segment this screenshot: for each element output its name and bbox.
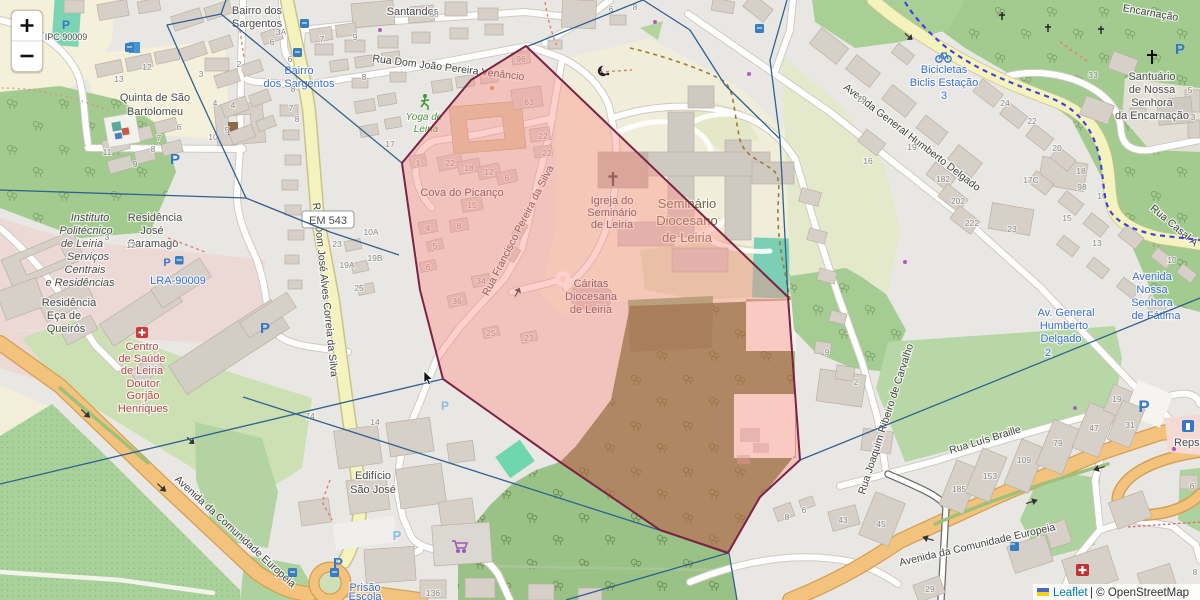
svg-text:3: 3 xyxy=(199,69,204,79)
svg-text:Edifício: Edifício xyxy=(355,470,391,482)
svg-text:Humberto: Humberto xyxy=(1040,320,1088,332)
svg-text:Nossa: Nossa xyxy=(1136,284,1168,296)
svg-text:16: 16 xyxy=(863,156,873,166)
svg-text:98: 98 xyxy=(1077,182,1087,192)
svg-text:Senhora: Senhora xyxy=(1131,97,1173,109)
svg-text:Av. General: Av. General xyxy=(1037,307,1094,319)
svg-text:P: P xyxy=(62,18,70,32)
svg-text:6: 6 xyxy=(1190,481,1195,491)
svg-text:23: 23 xyxy=(332,239,342,249)
svg-text:Henriques: Henriques xyxy=(118,403,169,415)
svg-text:13: 13 xyxy=(114,74,124,84)
svg-text:185: 185 xyxy=(952,484,966,494)
svg-text:P: P xyxy=(1138,397,1149,416)
svg-text:20: 20 xyxy=(1052,143,1062,153)
svg-text:Escola: Escola xyxy=(348,591,382,600)
svg-text:P: P xyxy=(163,257,170,269)
svg-text:Residência: Residência xyxy=(42,297,97,309)
svg-text:P: P xyxy=(393,528,402,543)
svg-text:Delgado: Delgado xyxy=(1041,333,1082,345)
svg-text:25: 25 xyxy=(354,283,364,293)
svg-text:13: 13 xyxy=(1092,238,1102,248)
svg-text:33: 33 xyxy=(1088,70,1098,80)
svg-text:Residência: Residência xyxy=(128,212,183,224)
svg-text:43: 43 xyxy=(838,515,848,525)
svg-text:2: 2 xyxy=(854,377,859,387)
svg-text:19B: 19B xyxy=(367,253,382,263)
svg-text:Bicicletas: Bicicletas xyxy=(921,64,968,76)
svg-text:Gorjão: Gorjão xyxy=(126,390,159,402)
svg-text:8: 8 xyxy=(785,512,790,522)
svg-text:8: 8 xyxy=(295,114,300,124)
svg-text:Eça de: Eça de xyxy=(47,310,81,322)
svg-text:Leaflet: Leaflet xyxy=(1053,587,1088,599)
svg-text:10: 10 xyxy=(1167,255,1177,265)
svg-text:5: 5 xyxy=(225,125,230,135)
svg-text:10A: 10A xyxy=(363,227,378,237)
svg-text:P: P xyxy=(441,399,449,413)
svg-text:136: 136 xyxy=(426,588,440,598)
svg-text:Quinta de São: Quinta de São xyxy=(120,92,190,104)
svg-text:Doutor: Doutor xyxy=(126,378,159,390)
svg-text:4: 4 xyxy=(231,100,236,110)
svg-text:6: 6 xyxy=(177,122,182,132)
svg-text:Bartolomeu: Bartolomeu xyxy=(127,106,183,118)
svg-text:Serviços: Serviços xyxy=(67,251,110,263)
svg-text:P: P xyxy=(1175,41,1185,58)
svg-text:7: 7 xyxy=(320,34,325,44)
svg-text:e Residências: e Residências xyxy=(45,277,115,289)
svg-text:2: 2 xyxy=(237,59,242,69)
svg-text:8: 8 xyxy=(362,72,367,82)
svg-text:17: 17 xyxy=(385,139,395,149)
svg-text:de Leiria: de Leiria xyxy=(61,238,103,250)
svg-text:24: 24 xyxy=(1000,98,1010,108)
svg-text:da Encarnação: da Encarnação xyxy=(1115,110,1189,122)
svg-text:19: 19 xyxy=(907,142,917,152)
svg-text:19: 19 xyxy=(1112,394,1122,404)
svg-text:29: 29 xyxy=(857,94,867,104)
svg-text:6: 6 xyxy=(288,54,293,64)
svg-text:Centrais: Centrais xyxy=(65,264,106,276)
svg-text:8: 8 xyxy=(151,144,156,154)
svg-text:de Nossa: de Nossa xyxy=(1129,84,1176,96)
svg-text:18: 18 xyxy=(1076,166,1086,176)
svg-text:19A: 19A xyxy=(339,260,354,270)
svg-text:8: 8 xyxy=(1193,567,1198,577)
svg-text:de Saúde: de Saúde xyxy=(118,353,165,365)
svg-text:7: 7 xyxy=(157,133,162,143)
svg-text:12: 12 xyxy=(142,62,152,72)
svg-text:6: 6 xyxy=(802,505,807,515)
svg-text:LRA-90009: LRA-90009 xyxy=(150,275,206,287)
svg-text:6: 6 xyxy=(270,37,275,47)
svg-text:P: P xyxy=(260,320,270,337)
svg-text:3A: 3A xyxy=(276,27,287,37)
svg-text:Santuário: Santuário xyxy=(1128,71,1175,83)
svg-text:31: 31 xyxy=(1125,420,1135,430)
svg-text:47: 47 xyxy=(1089,423,1099,433)
svg-text:5: 5 xyxy=(1188,85,1193,95)
svg-text:14: 14 xyxy=(370,417,380,427)
svg-text:8: 8 xyxy=(291,84,296,94)
svg-text:Bairro dos: Bairro dos xyxy=(232,5,283,17)
svg-text:23: 23 xyxy=(1007,224,1017,234)
svg-text:3: 3 xyxy=(105,232,110,242)
svg-text:153: 153 xyxy=(983,471,997,481)
svg-text:| © OpenStreetMap: | © OpenStreetMap xyxy=(1090,587,1189,599)
svg-text:9: 9 xyxy=(133,159,138,169)
svg-text:4: 4 xyxy=(213,98,218,108)
svg-text:45: 45 xyxy=(876,519,886,529)
svg-text:3: 3 xyxy=(1191,112,1196,122)
svg-text:Senhora: Senhora xyxy=(1131,297,1173,309)
svg-text:Centro: Centro xyxy=(125,341,158,353)
svg-text:79: 79 xyxy=(1053,438,1063,448)
svg-text:Avenida: Avenida xyxy=(1132,271,1172,283)
svg-text:22: 22 xyxy=(1027,116,1037,126)
svg-text:29: 29 xyxy=(925,584,935,594)
svg-text:Biclis Estação: Biclis Estação xyxy=(910,77,978,89)
svg-text:11: 11 xyxy=(103,147,112,157)
svg-text:de Leiria: de Leiria xyxy=(121,365,164,377)
svg-text:9: 9 xyxy=(353,32,358,42)
svg-text:12: 12 xyxy=(126,240,136,250)
svg-text:7: 7 xyxy=(289,103,294,113)
svg-text:222: 222 xyxy=(965,218,979,228)
svg-text:José: José xyxy=(140,225,163,237)
svg-text:2: 2 xyxy=(1045,347,1051,359)
svg-text:Instituto: Instituto xyxy=(71,212,110,224)
svg-text:Queirós: Queirós xyxy=(47,323,86,335)
svg-text:dos Sargentos: dos Sargentos xyxy=(264,78,335,90)
svg-text:São José: São José xyxy=(350,484,396,496)
svg-text:Bairro: Bairro xyxy=(284,65,313,77)
svg-text:68: 68 xyxy=(429,9,439,19)
svg-text:3: 3 xyxy=(941,90,947,102)
svg-text:P: P xyxy=(170,151,180,168)
svg-text:15: 15 xyxy=(1062,213,1072,223)
svg-text:17C: 17C xyxy=(1023,175,1039,185)
svg-text:9: 9 xyxy=(825,347,830,357)
svg-text:IPC 90009: IPC 90009 xyxy=(45,32,88,42)
svg-text:202: 202 xyxy=(951,196,965,206)
svg-text:182: 182 xyxy=(936,174,950,184)
svg-text:109: 109 xyxy=(1017,455,1031,465)
svg-text:Repsol: Repsol xyxy=(1174,437,1200,449)
